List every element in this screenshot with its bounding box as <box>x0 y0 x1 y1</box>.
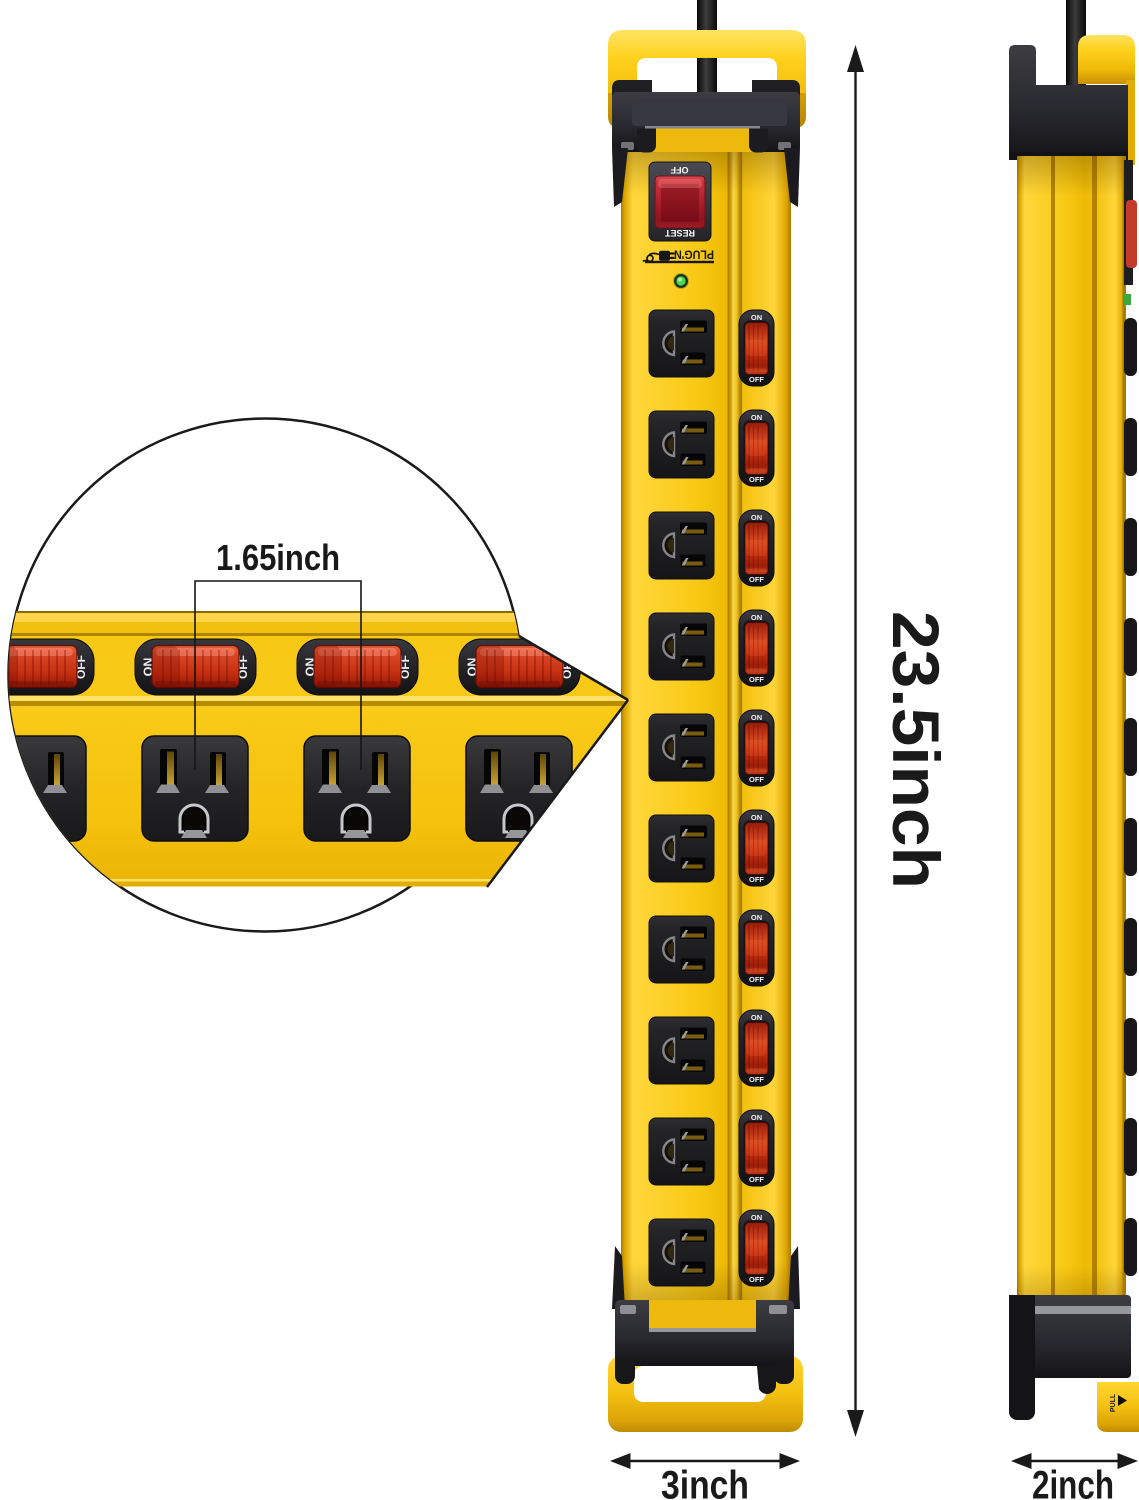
svg-text:2inch: 2inch <box>1032 1464 1114 1500</box>
svg-text:PLUG'N: PLUG'N <box>674 248 714 260</box>
svg-text:RESET: RESET <box>664 228 695 238</box>
svg-text:PULL: PULL <box>1110 1393 1117 1412</box>
svg-text:23.5inch: 23.5inch <box>879 611 953 889</box>
svg-text:OFF: OFF <box>670 165 688 175</box>
svg-text:1.65inch: 1.65inch <box>216 537 340 578</box>
svg-text:3inch: 3inch <box>661 1464 749 1500</box>
